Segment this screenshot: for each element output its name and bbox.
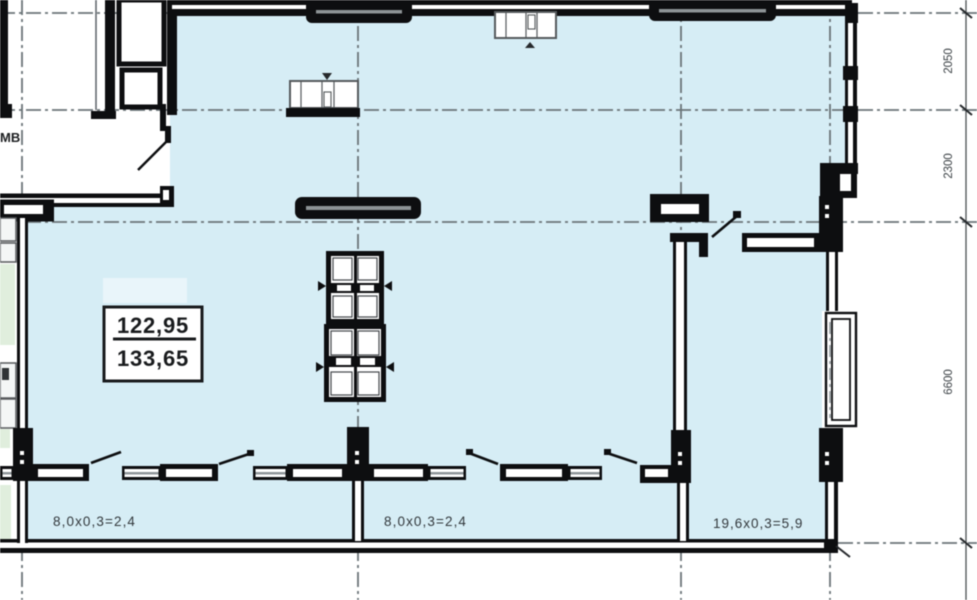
- svg-text:19,6х0,3=5,9: 19,6х0,3=5,9: [713, 516, 803, 531]
- svg-text:8,0х0,3=2,4: 8,0х0,3=2,4: [384, 514, 467, 529]
- svg-text:МВ: МВ: [0, 130, 20, 145]
- svg-text:2300: 2300: [943, 153, 955, 179]
- svg-text:122,95: 122,95: [117, 313, 189, 338]
- svg-text:133,65: 133,65: [117, 346, 189, 371]
- svg-text:2050: 2050: [943, 48, 955, 74]
- svg-text:6600: 6600: [943, 369, 955, 395]
- svg-text:8,0х0,3=2,4: 8,0х0,3=2,4: [53, 514, 136, 529]
